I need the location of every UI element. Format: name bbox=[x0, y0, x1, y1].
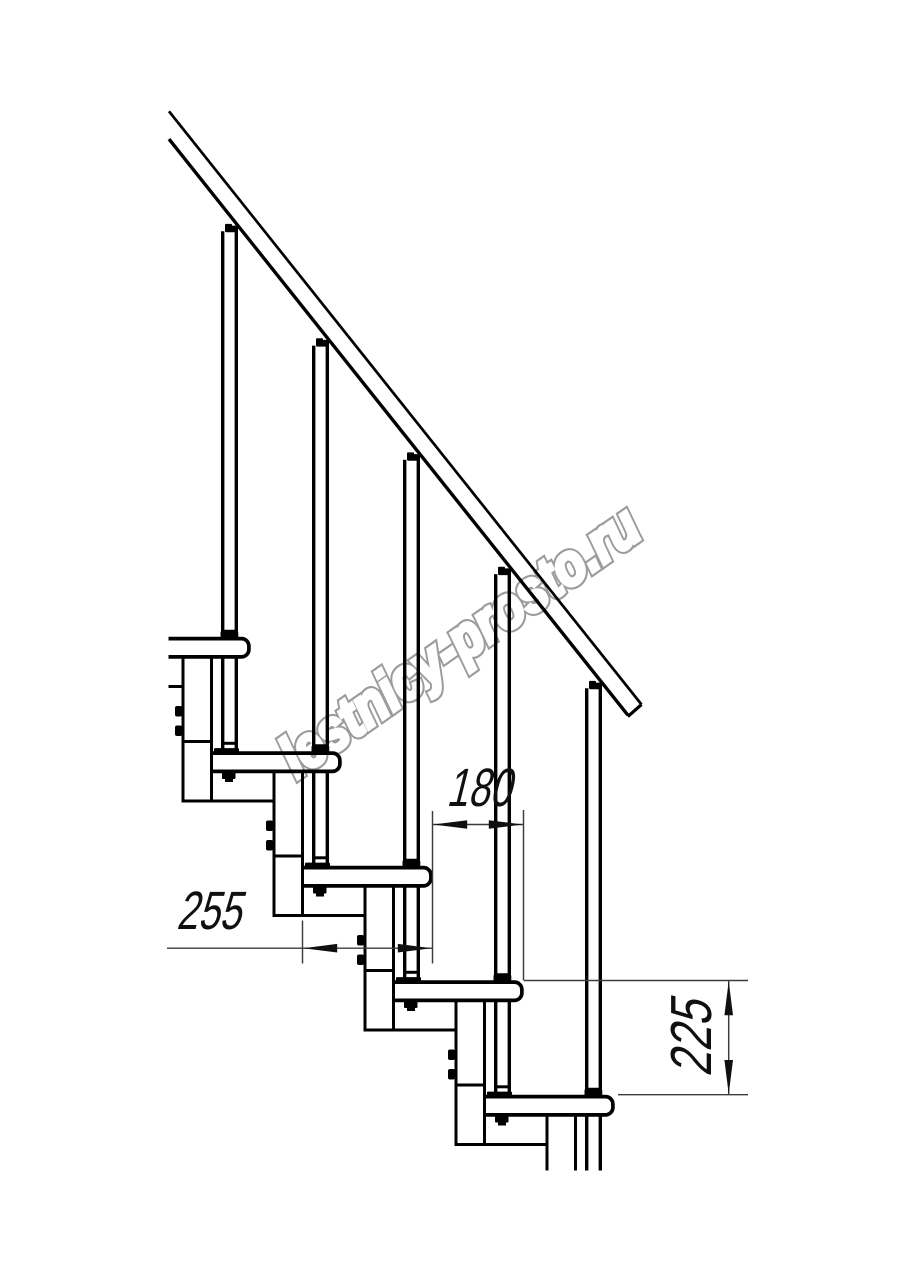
svg-text:225: 225 bbox=[660, 989, 725, 1081]
svg-text:255: 255 bbox=[173, 882, 252, 942]
